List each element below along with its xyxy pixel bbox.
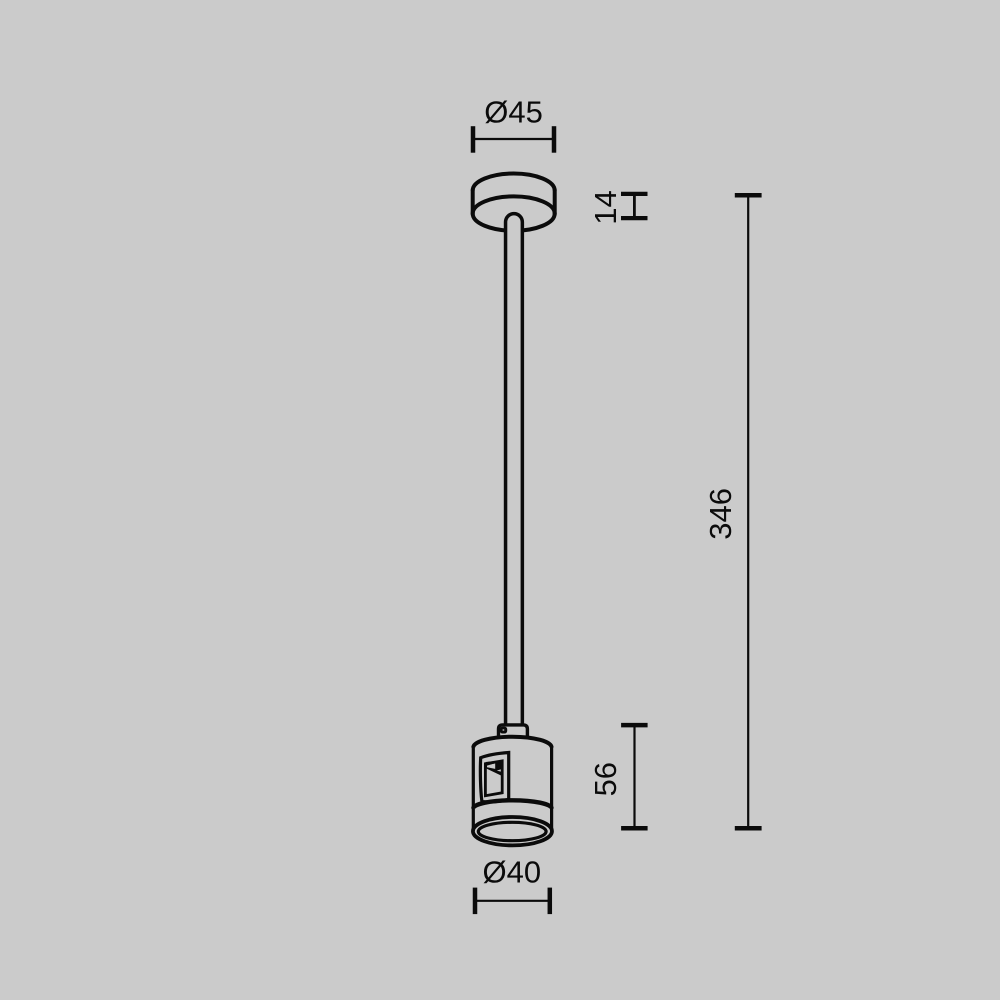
- svg-text:346: 346: [703, 488, 738, 540]
- svg-text:14: 14: [588, 190, 623, 224]
- svg-text:56: 56: [588, 762, 623, 796]
- svg-text:Ø45: Ø45: [484, 94, 543, 129]
- svg-text:Ø40: Ø40: [482, 854, 541, 889]
